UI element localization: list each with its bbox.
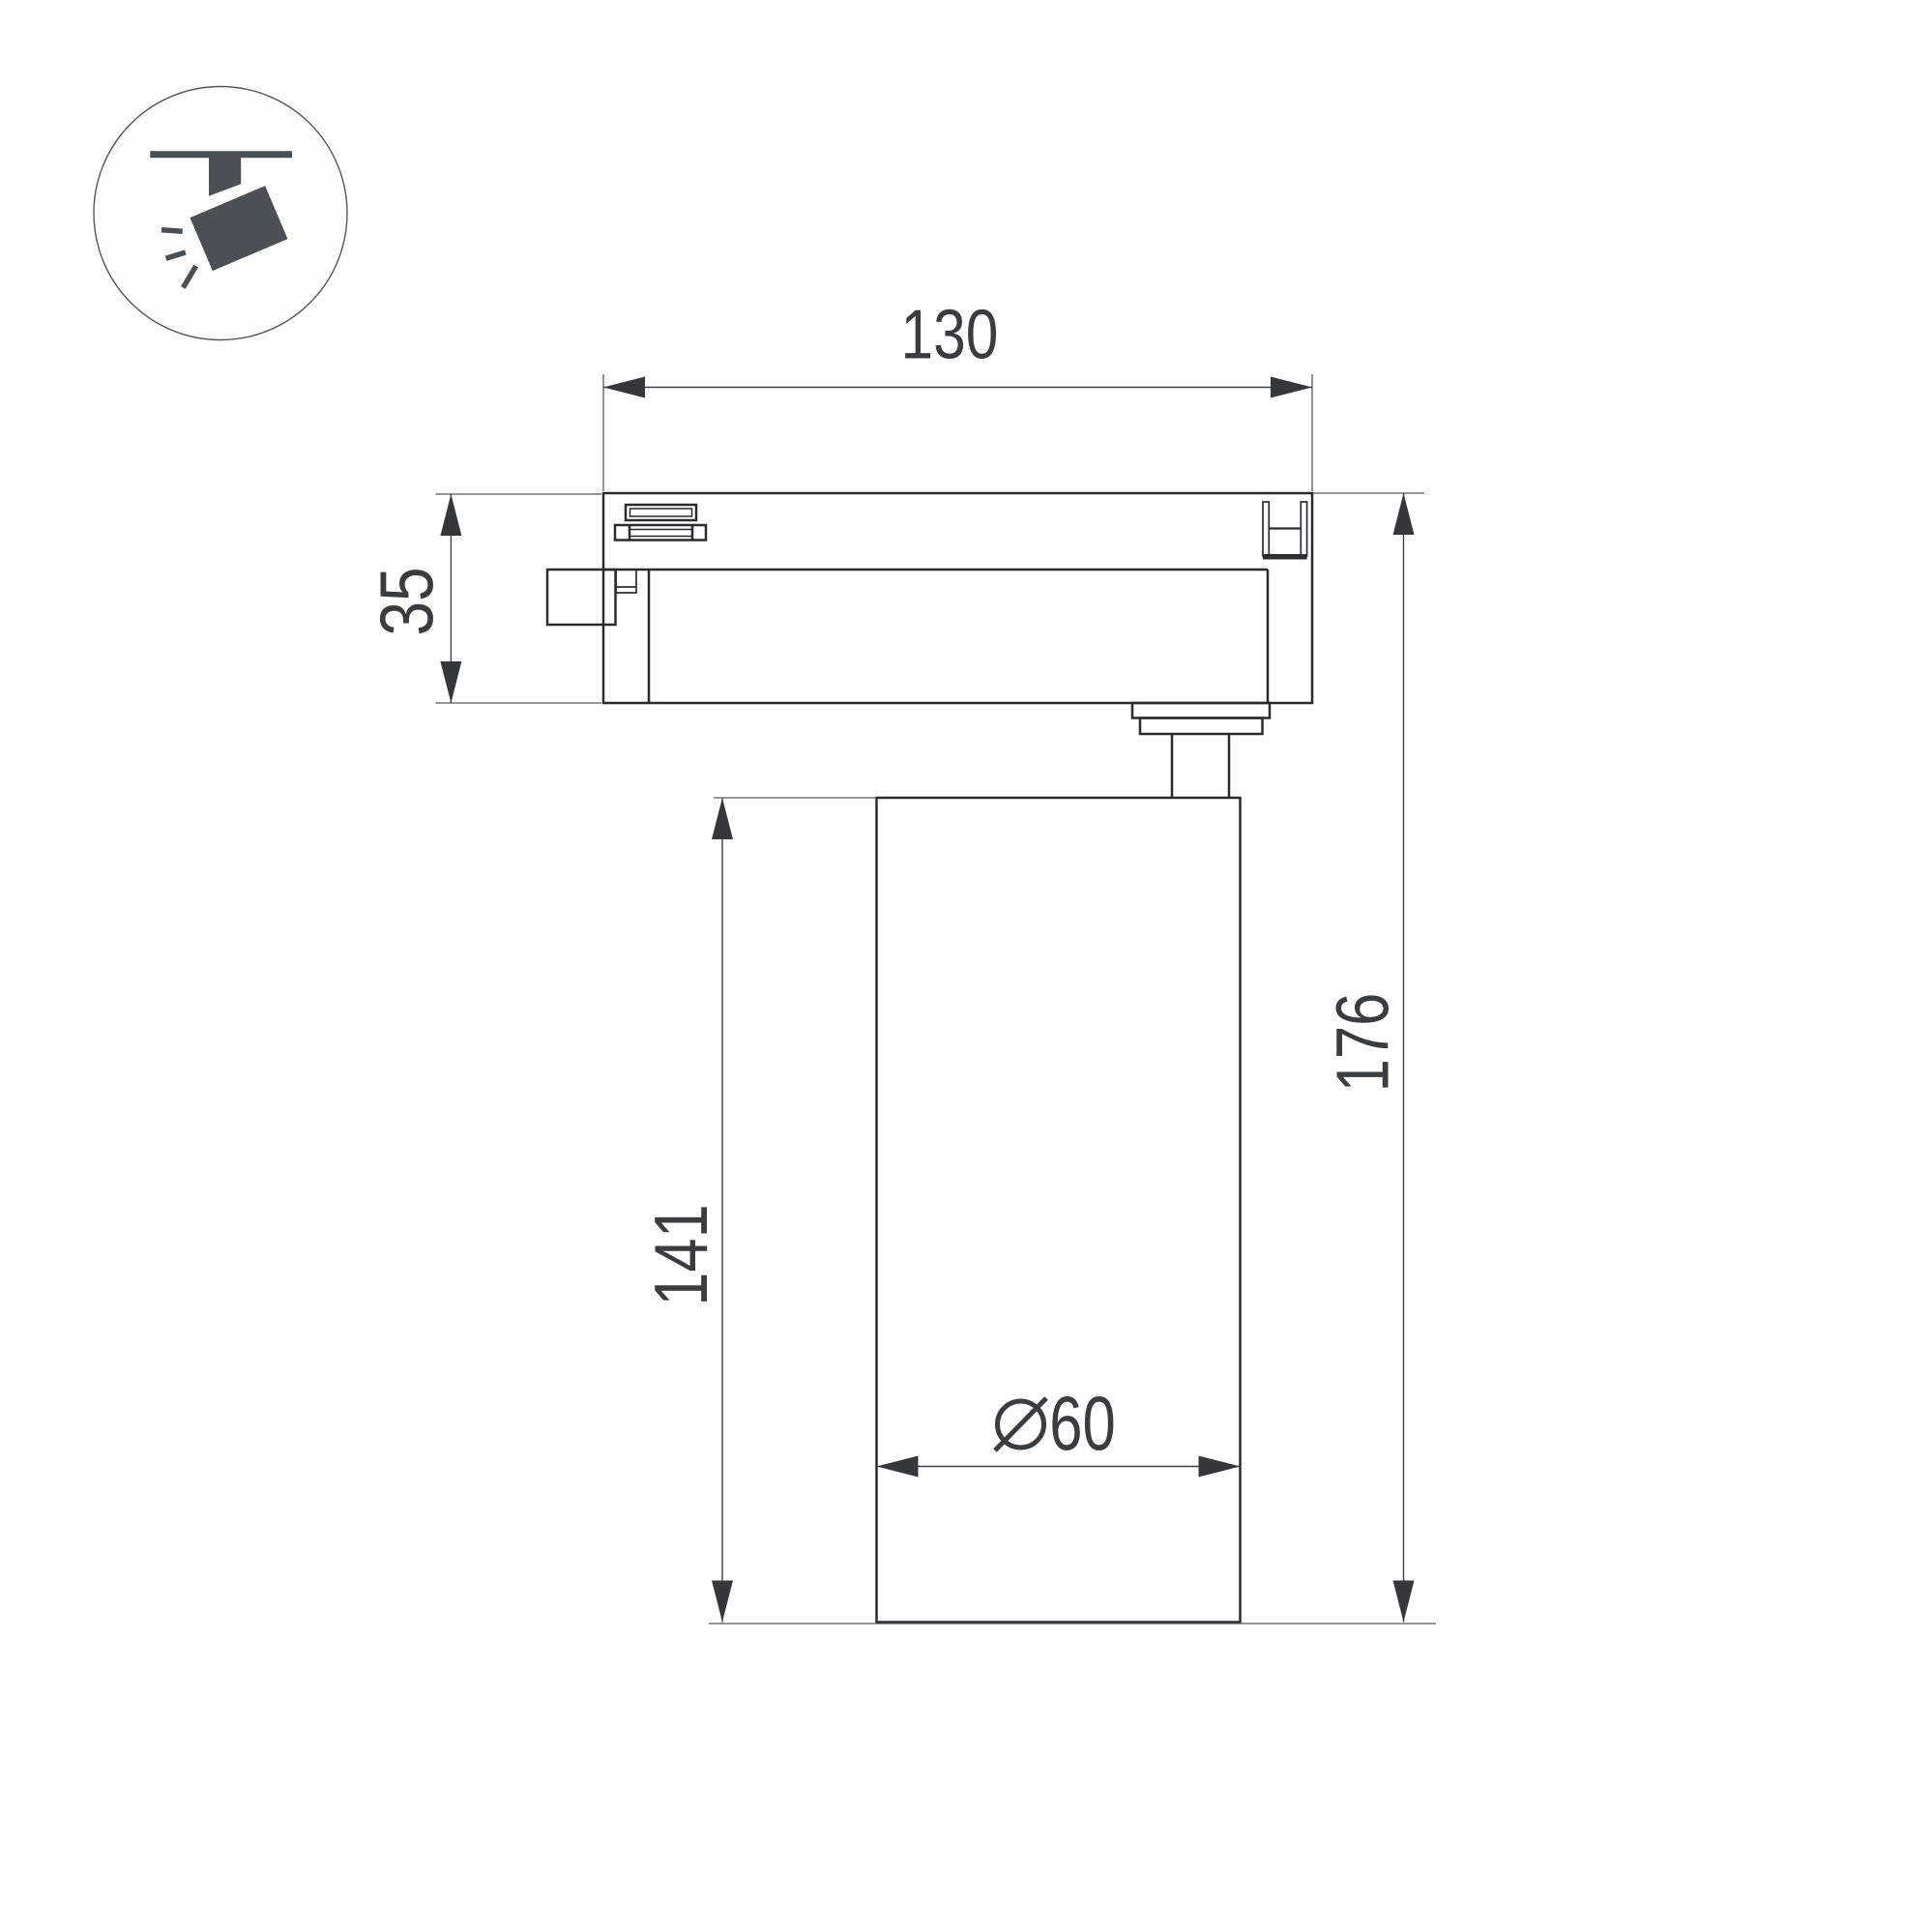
svg-text:141: 141 [640,1204,724,1305]
svg-text:130: 130 [901,297,999,374]
svg-text:35: 35 [365,567,449,635]
svg-text:60: 60 [1049,1382,1116,1467]
svg-text:176: 176 [1321,993,1404,1093]
